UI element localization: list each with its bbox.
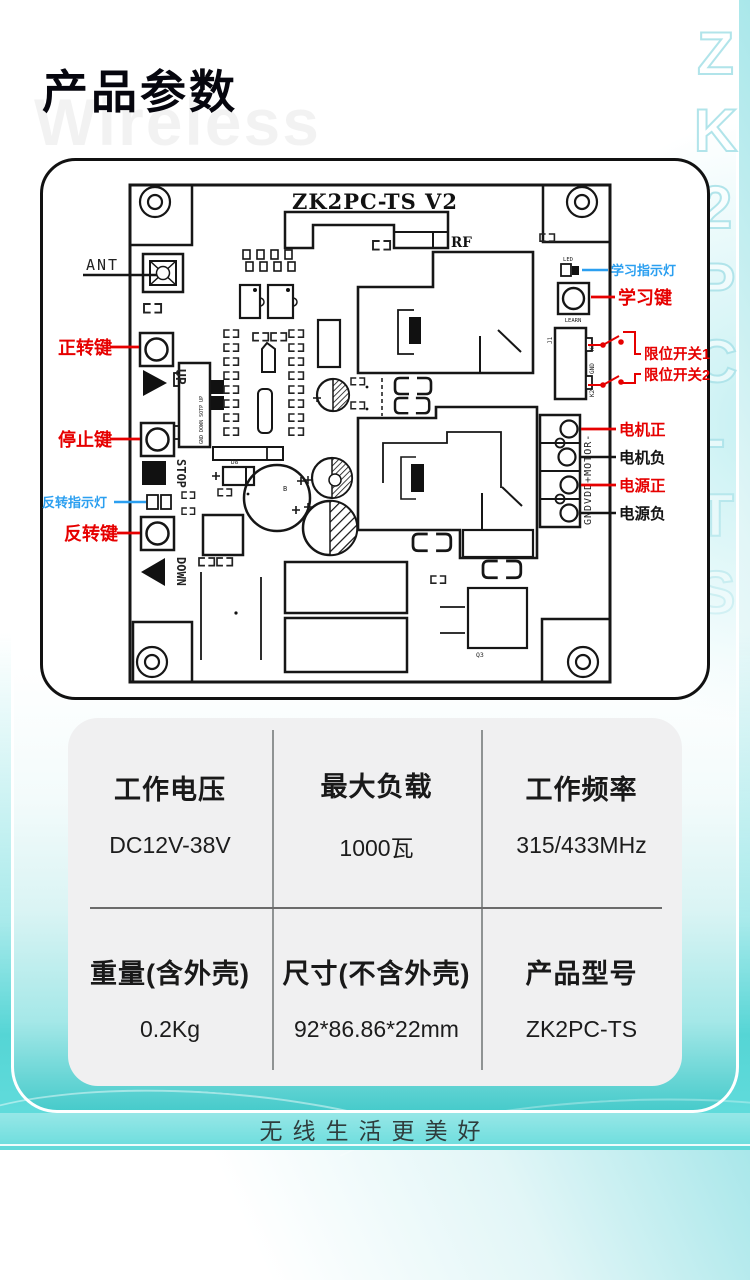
forward-key-label: 正转键 bbox=[58, 337, 112, 358]
spec-cell-model: 产品型号 ZK2PC-TS bbox=[481, 907, 682, 1086]
learn-key-label: 学习键 bbox=[618, 287, 672, 308]
pcb-diagram: ZK2PC-TS V2 RF ANT LED LEARN UP STOP DOW… bbox=[40, 158, 710, 700]
stop-silk: STOP bbox=[174, 459, 188, 488]
spec-value: 1000瓦 bbox=[339, 829, 413, 863]
spec-cell-voltage: 工作电压 DC12V-38V bbox=[68, 718, 272, 907]
stop-square-icon bbox=[142, 461, 166, 485]
spec-cell-load: 最大负载 1000瓦 bbox=[272, 718, 481, 907]
up-silk: UP bbox=[172, 369, 187, 385]
j1-silk: J1 bbox=[547, 336, 554, 344]
down-silk: DOWN bbox=[174, 557, 188, 586]
limit-switch-1-label: 限位开关1 bbox=[644, 345, 710, 363]
connector-silk: GND DOWN SOTP UP bbox=[199, 396, 205, 444]
power-positive-label: 电源正 bbox=[619, 476, 666, 495]
spec-value: DC12V-38V bbox=[109, 832, 230, 859]
spec-label: 最大负载 bbox=[321, 765, 433, 804]
stop-key-label: 停止键 bbox=[58, 429, 112, 450]
spec-label: 产品型号 bbox=[526, 952, 638, 991]
learn-indicator-label: 学习指示灯 bbox=[611, 263, 676, 278]
terminal-silk: GNDVDD+MOTOR- bbox=[583, 434, 594, 525]
spec-table: 工作电压 DC12V-38V 最大负载 1000瓦 工作频率 315/433MH… bbox=[68, 718, 682, 1086]
spec-cell-weight: 重量(含外壳) 0.2Kg bbox=[68, 907, 272, 1086]
reverse-indicator-label: 反转指示灯 bbox=[42, 495, 107, 510]
spec-label: 重量(含外壳) bbox=[90, 952, 250, 991]
gnd-silk: GND bbox=[589, 363, 596, 374]
k2-silk: K2 bbox=[589, 389, 596, 397]
spec-cell-frequency: 工作频率 315/433MHz bbox=[481, 718, 682, 907]
spec-cell-size: 尺寸(不含外壳) 92*86.86*22mm bbox=[272, 907, 481, 1086]
page-title: 产品参数 bbox=[42, 56, 238, 122]
spec-label: 工作电压 bbox=[114, 768, 226, 807]
limit-switch-2-label: 限位开关2 bbox=[644, 366, 710, 384]
q3-silk: Q3 bbox=[476, 651, 484, 659]
power-negative-label: 电源负 bbox=[619, 504, 666, 523]
spec-value: ZK2PC-TS bbox=[526, 1016, 637, 1043]
motor-negative-label: 电机负 bbox=[619, 448, 666, 467]
ant-silk: ANT bbox=[86, 256, 119, 274]
b-silk: B bbox=[283, 485, 287, 493]
reverse-key-label: 反转键 bbox=[64, 523, 118, 544]
spec-value: 315/433MHz bbox=[516, 832, 646, 859]
rf-silk: RF bbox=[451, 235, 472, 251]
motor-positive-label: 电机正 bbox=[619, 420, 666, 439]
board-model-silk: ZK2PC-TS V2 bbox=[292, 189, 458, 214]
led-silk: LED bbox=[563, 257, 573, 263]
spec-label: 工作频率 bbox=[526, 768, 638, 807]
spec-label: 尺寸(不含外壳) bbox=[283, 952, 471, 991]
footer-strip bbox=[0, 1146, 750, 1150]
learn-silk: LEARN bbox=[565, 318, 582, 324]
spec-value: 92*86.86*22mm bbox=[294, 1016, 459, 1043]
footer-slogan: 无线生活更美好 bbox=[0, 1113, 750, 1146]
spec-value: 0.2Kg bbox=[140, 1016, 200, 1043]
d8-silk: D8 bbox=[231, 459, 239, 466]
